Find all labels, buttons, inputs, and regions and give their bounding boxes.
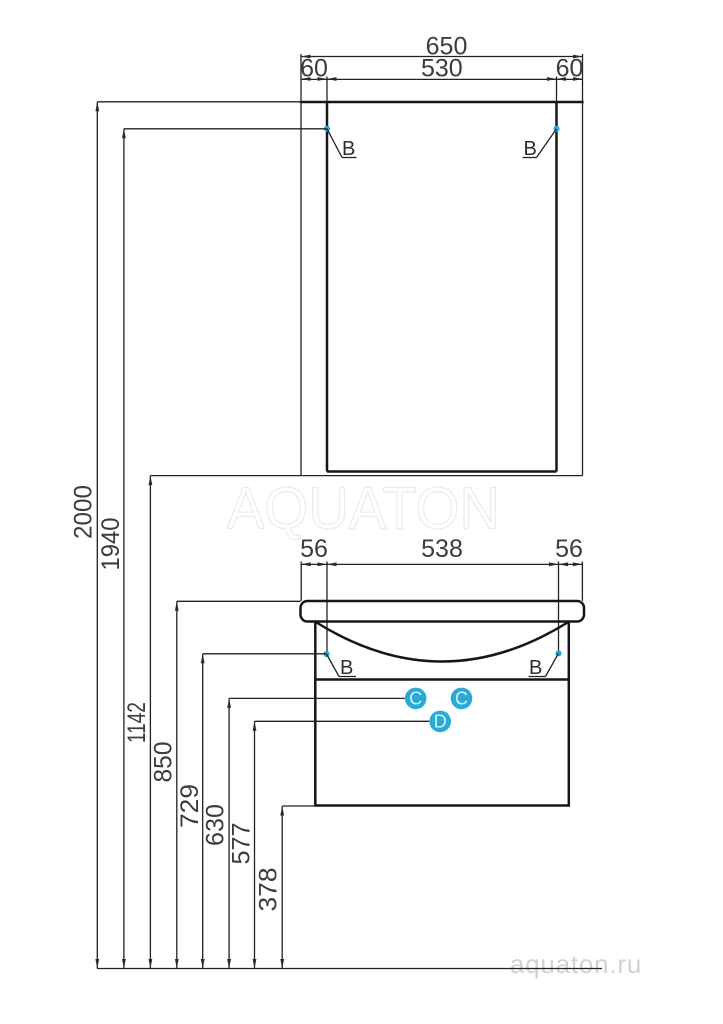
svg-text:B: B (342, 138, 355, 160)
svg-text:378: 378 (255, 868, 283, 912)
svg-text:B: B (524, 138, 537, 160)
svg-text:60: 60 (556, 55, 584, 83)
svg-text:1142: 1142 (123, 702, 151, 743)
svg-text:850: 850 (150, 742, 178, 783)
svg-text:630: 630 (202, 804, 230, 846)
svg-text:56: 56 (555, 535, 583, 563)
svg-text:2000: 2000 (70, 485, 98, 539)
svg-text:C: C (409, 689, 422, 709)
svg-text:60: 60 (300, 55, 328, 83)
svg-text:B: B (529, 657, 542, 679)
svg-text:56: 56 (300, 535, 328, 563)
svg-text:D: D (434, 712, 447, 732)
svg-text:538: 538 (421, 535, 463, 563)
svg-text:B: B (340, 657, 353, 679)
svg-text:577: 577 (228, 823, 256, 865)
svg-text:1940: 1940 (97, 518, 125, 571)
svg-text:C: C (455, 689, 468, 709)
svg-text:530: 530 (421, 55, 463, 83)
svg-text:aquaton.ru: aquaton.ru (510, 949, 642, 979)
svg-text:AQUATON: AQUATON (227, 476, 500, 542)
svg-text:729: 729 (176, 784, 204, 828)
